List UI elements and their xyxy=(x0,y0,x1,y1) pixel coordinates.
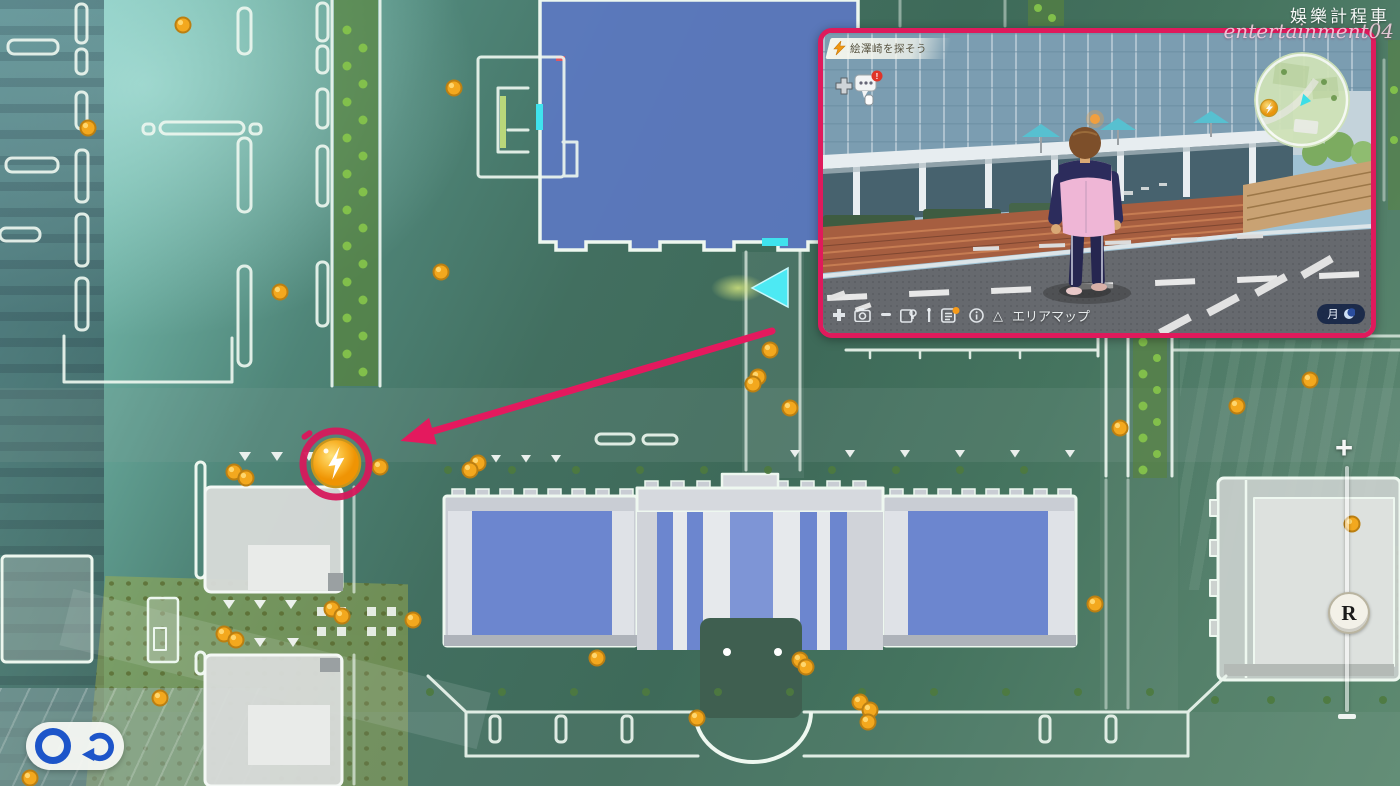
minimap xyxy=(1254,52,1350,148)
b-button-ring-icon[interactable] xyxy=(35,728,71,764)
door-marker-cyan xyxy=(536,104,543,130)
quest-label: 絵澤崎を探そう xyxy=(850,41,927,56)
alert-badge: ! xyxy=(872,71,883,82)
area-map-label[interactable]: エリアマップ xyxy=(1012,306,1090,325)
zoom-in-icon[interactable]: + xyxy=(1335,432,1353,463)
camera-icon[interactable] xyxy=(854,308,872,322)
map-pin-icon[interactable] xyxy=(900,308,917,323)
flag-icon[interactable] xyxy=(926,308,932,322)
notification-badge xyxy=(953,307,960,314)
quest-lightning-icon xyxy=(833,41,846,56)
back-control[interactable] xyxy=(26,722,124,770)
moon-icon xyxy=(1343,308,1355,320)
watermark-handle: entertainment04 xyxy=(1223,19,1394,43)
dpad-icon xyxy=(836,78,852,94)
menu-list-icon[interactable] xyxy=(941,307,960,323)
blue-building-block xyxy=(536,0,858,250)
triangle-button-icon[interactable]: △ xyxy=(993,309,1003,322)
minimap-lightning-icon xyxy=(1261,100,1278,117)
exit-marker-cyan xyxy=(762,238,788,246)
zoom-track[interactable] xyxy=(1345,466,1349,712)
building-entrance xyxy=(700,618,802,718)
lightning-spot-icon[interactable] xyxy=(312,439,360,487)
day-badge: 月 xyxy=(1317,304,1365,324)
dpad-plus-icon[interactable] xyxy=(833,309,845,321)
gameplay-inset: 絵澤崎を探そう ! xyxy=(818,28,1376,338)
control-hints: ! xyxy=(829,69,885,113)
game-screen: 絵澤崎を探そう ! xyxy=(0,0,1400,786)
inset-toolbar: △ エリアマップ xyxy=(833,303,1090,327)
return-arrow-icon[interactable] xyxy=(81,728,115,764)
r-button[interactable]: R xyxy=(1328,592,1370,634)
zoom-out-icon[interactable] xyxy=(1338,714,1356,719)
building-central-parapet xyxy=(637,488,883,512)
info-circle-icon[interactable] xyxy=(969,308,984,323)
day-label: 月 xyxy=(1327,306,1339,322)
svg-text:!: ! xyxy=(876,72,879,81)
minus-button-icon[interactable] xyxy=(881,313,891,317)
map-zoom-control: + R xyxy=(1326,430,1370,732)
quest-banner: 絵澤崎を探そう xyxy=(825,38,951,59)
